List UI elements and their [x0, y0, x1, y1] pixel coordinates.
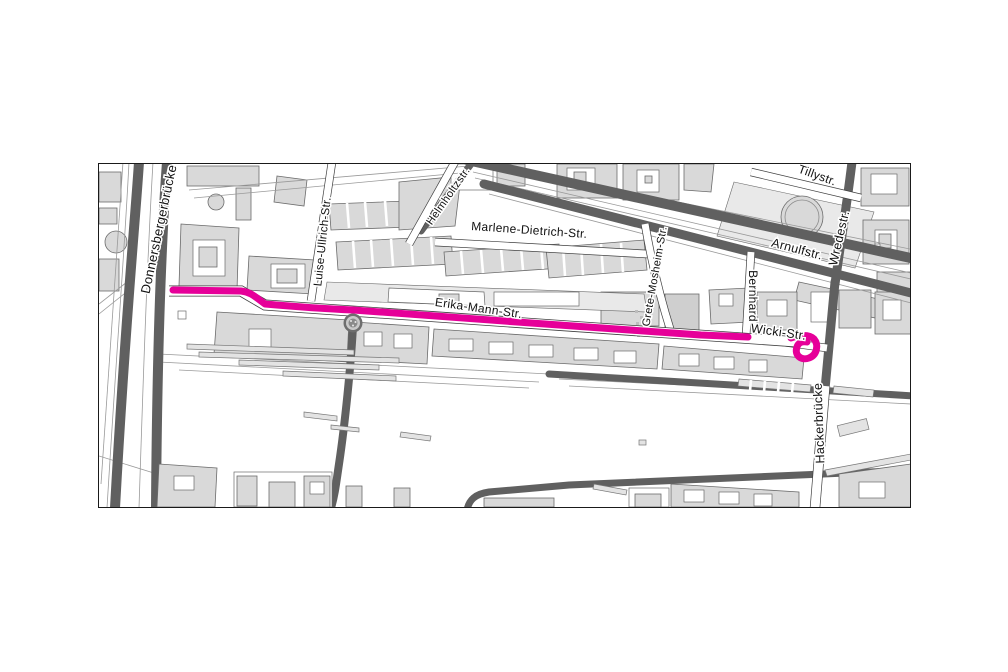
roundabout-icon: [344, 314, 363, 333]
street-label-bernhard: Bernhard: [746, 270, 760, 322]
map-canvas: Donnersbergerbrücke Luise-Ullrich-Str. H…: [99, 164, 910, 507]
street-label-hackerbruecke: Hackerbrücke: [811, 383, 828, 464]
map-frame: Donnersbergerbrücke Luise-Ullrich-Str. H…: [98, 163, 911, 508]
street-label-luise-ullrich-str: Luise-Ullrich-Str.: [312, 196, 333, 287]
page: { "map": { "kind": "street-map-figure", …: [0, 0, 1008, 672]
road-donnersbergerbruecke-west: [115, 164, 139, 507]
bottom-buildings-layer: [157, 454, 910, 507]
street-label-marlene-dietrich-str: Marlene-Dietrich-Str.: [471, 219, 588, 241]
